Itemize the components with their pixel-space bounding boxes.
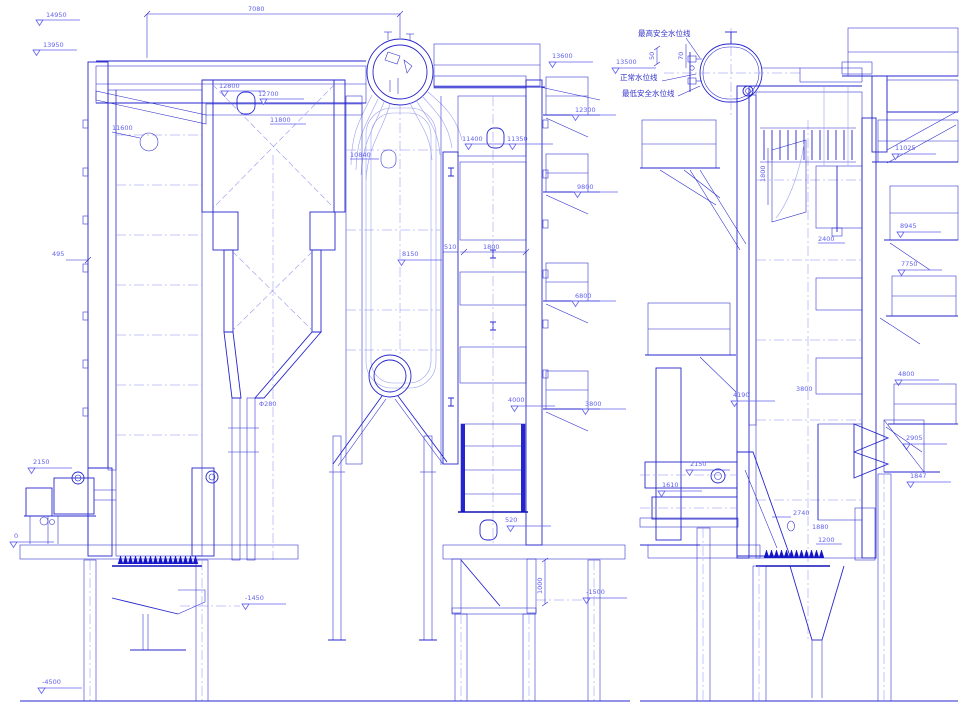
label-11600: 11600 [112,124,133,132]
elev-1847: 1847 [910,472,927,480]
label-10840: 10840 [350,151,371,159]
dim-1800-front: 1800 [483,243,500,251]
elev-2905: 2905 [906,434,923,442]
elev-4800: 4800 [898,370,915,378]
elev-520: 520 [505,516,517,524]
dim-1880: 1880 [812,523,829,531]
elev-2150-front: 2150 [33,458,50,466]
paper-background [0,0,965,717]
elev-2150-side: 2150 [690,460,707,468]
elev-4190: 4190 [733,391,750,399]
elev-14950: 14950 [46,11,67,19]
dim-1000: 1000 [536,577,544,594]
dim-overall-width: 7080 [248,5,265,13]
elev-6800: 6800 [575,292,592,300]
elev-11025: 11025 [895,144,916,152]
elev-9800: 9800 [577,183,594,191]
label-11800: 11800 [270,116,291,124]
label-12700: 12700 [258,90,279,98]
dim-2740: 2740 [793,509,810,517]
elev-11400: 11400 [462,135,483,143]
elev-m1450: -1450 [245,594,264,602]
dim-510: 510 [444,243,456,251]
dim-wall-495: 495 [52,250,64,258]
elev-0: 0 [14,532,18,540]
elev-m4500: -4500 [42,678,61,686]
label-normal-water-level: 正常水位线 [620,72,658,82]
elev-3800: 3800 [585,400,602,408]
dim-2400: 2400 [818,235,835,243]
elev-13950: 13950 [43,41,64,49]
boiler-technical-drawing: 7080 14950 13950 495 [0,0,965,717]
elev-12300: 12300 [575,106,596,114]
elev-m1500: -1500 [586,588,605,596]
elev-8945: 8945 [900,222,917,230]
dim-3800-side: 3800 [796,385,813,393]
dim-1200: 1200 [818,536,835,544]
elev-7750: 7750 [901,260,918,268]
dim-50: 50 [648,52,656,60]
elev-13500: 13500 [616,58,637,66]
elev-13600: 13600 [552,52,573,60]
label-phi280: Φ280 [259,400,277,408]
elev-11350: 11350 [507,135,528,143]
blueprint-stage: 7080 14950 13950 495 [0,0,965,717]
dim-70: 70 [677,52,685,60]
elev-8150: 8150 [402,250,419,258]
dim-1800-side: 1800 [759,165,767,182]
label-highest-water-level: 最高安全水位线 [638,28,691,38]
label-lowest-water-level: 最低安全水位线 [622,88,675,98]
elev-1610: 1610 [662,481,679,489]
elev-4000: 4000 [508,396,525,404]
label-12800: 12800 [219,82,240,90]
